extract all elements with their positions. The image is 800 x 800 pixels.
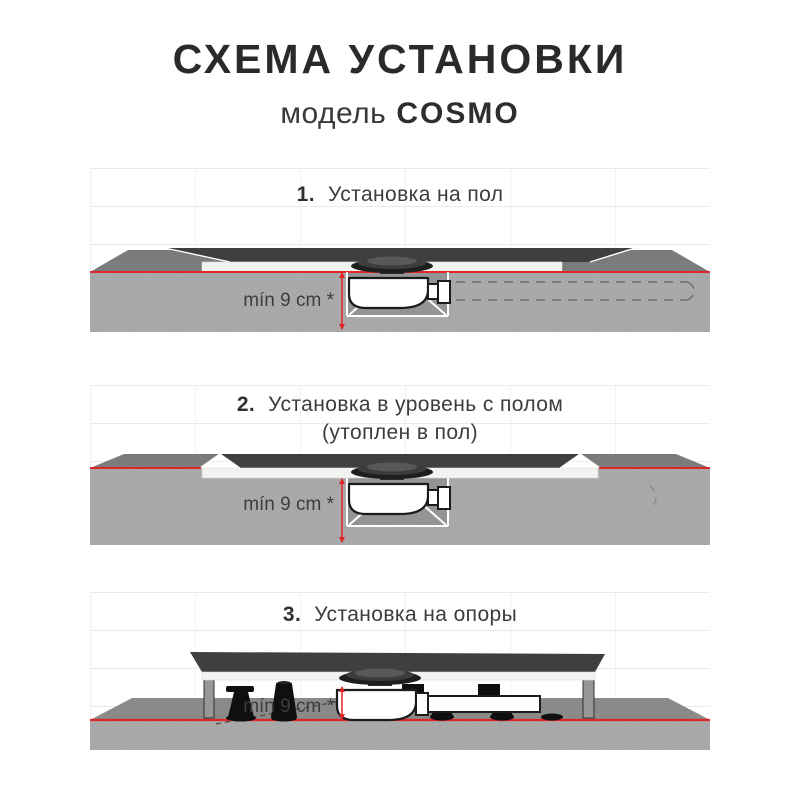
dimension-label: mín 9 cm *: [243, 696, 334, 717]
section-1-heading: 1.Установка на пол: [0, 182, 800, 207]
section-2-title: Установка в уровень с полом: [268, 393, 563, 416]
diagram-install-flush: mín 9 cm *: [90, 446, 710, 558]
model-label: модель: [280, 97, 386, 130]
section-3-heading: 3.Установка на опоры: [0, 602, 800, 627]
diagram-install-on-floor: mín 9 cm *: [90, 232, 710, 344]
dimension-label: mín 9 cm *: [243, 494, 334, 515]
diagram-install-on-supports: mín 9 cm *: [90, 640, 710, 775]
section-3-title: Установка на опоры: [314, 603, 517, 626]
model-line: модельCOSMO: [0, 97, 800, 131]
section-1-number: 1.: [297, 183, 315, 206]
section-2-heading: 2.Установка в уровень с полом (утоплен в…: [0, 392, 800, 445]
drain-pipe: [428, 696, 540, 712]
dimension-label: mín 9 cm *: [243, 290, 334, 311]
floor-slab: [90, 720, 710, 750]
model-name: COSMO: [396, 97, 519, 130]
section-2-number: 2.: [237, 393, 255, 416]
section-3-number: 3.: [283, 603, 301, 626]
section-2-subtitle: (утоплен в пол): [0, 420, 800, 445]
page-title: СХЕМА УСТАНОВКИ: [0, 36, 800, 83]
section-1-title: Установка на пол: [328, 183, 503, 206]
